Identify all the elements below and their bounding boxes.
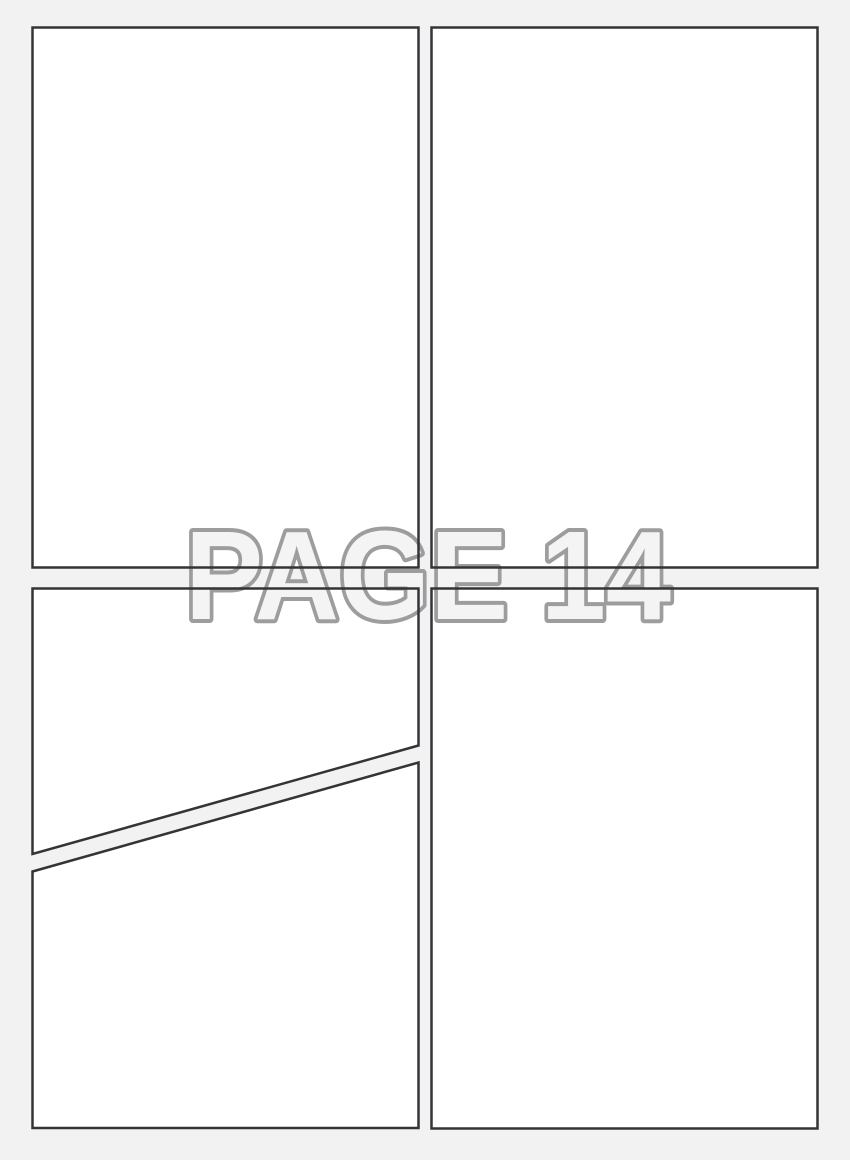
- panel-bottom-right-fill: [432, 589, 818, 1129]
- panel-top-left-fill: [33, 28, 419, 568]
- comic-page-canvas: PAGE 14: [0, 0, 850, 1160]
- page-number-label: PAGE 14: [185, 505, 671, 646]
- comic-page-template: PAGE 14: [0, 0, 850, 1160]
- panel-top-right-fill: [432, 28, 818, 568]
